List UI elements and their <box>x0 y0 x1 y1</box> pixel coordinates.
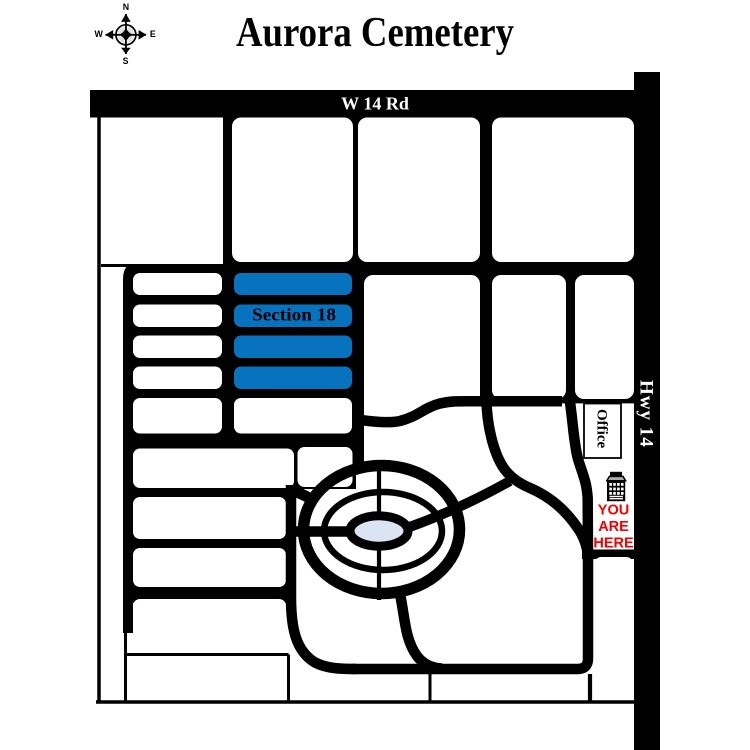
svg-text:Office: Office <box>594 409 610 448</box>
svg-text:W: W <box>95 29 104 39</box>
svg-text:W 14 Rd: W 14 Rd <box>341 94 409 114</box>
svg-text:Hwy 14: Hwy 14 <box>636 380 657 448</box>
svg-text:Section 18: Section 18 <box>252 305 336 325</box>
svg-text:E: E <box>150 29 156 39</box>
svg-text:HERE: HERE <box>593 536 634 552</box>
svg-text:Aurora Cemetery: Aurora Cemetery <box>236 10 514 56</box>
svg-text:YOU: YOU <box>598 503 629 519</box>
svg-text:ARE: ARE <box>598 519 629 535</box>
svg-text:N: N <box>123 2 129 12</box>
svg-text:S: S <box>123 56 129 66</box>
